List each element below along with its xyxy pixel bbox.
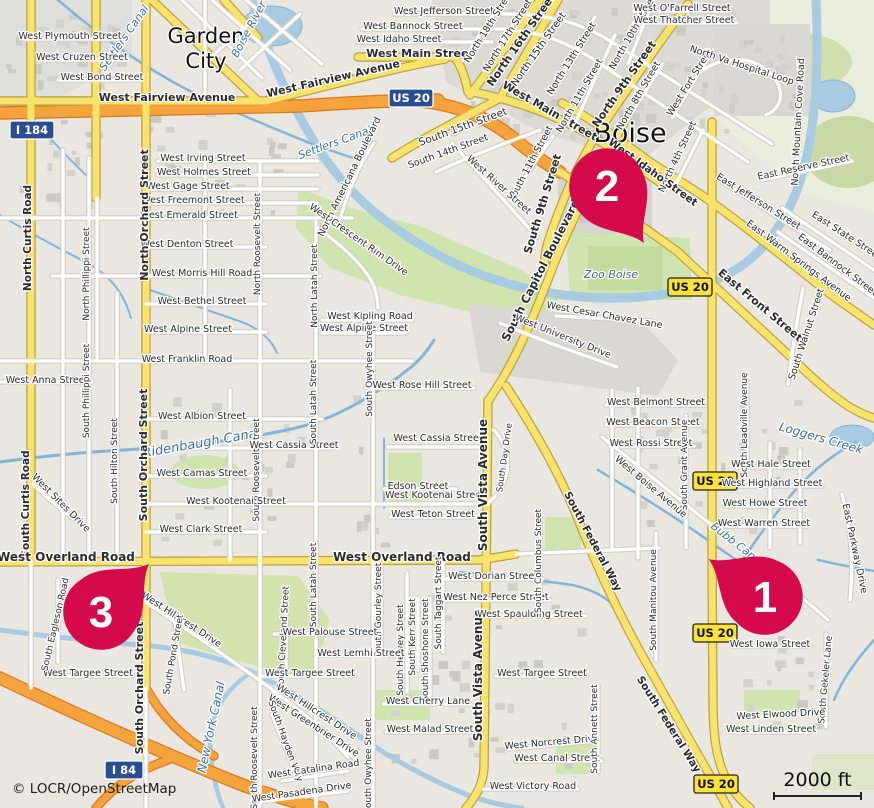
building: [161, 430, 168, 439]
building: [777, 665, 781, 671]
shield-text: I 184: [16, 123, 48, 137]
building: [572, 72, 583, 81]
street-label: West Main Street: [366, 47, 473, 60]
building: [181, 454, 187, 462]
building: [459, 708, 465, 713]
building: [198, 140, 207, 150]
building: [703, 82, 709, 88]
building: [288, 454, 296, 463]
street-label: West Targee Street: [265, 668, 355, 679]
street-label: West Kootenai Street: [385, 490, 485, 501]
building: [161, 536, 169, 541]
marker-number: 3: [89, 588, 113, 637]
street-label: West Franklin Road: [142, 354, 233, 365]
building: [612, 8, 618, 15]
street-label: West Denton Street: [140, 239, 233, 250]
building: [265, 467, 273, 474]
street-label: South Latah Street: [309, 359, 319, 444]
street-label: South Taggart Street: [434, 556, 444, 649]
street-label: West Bannock Street: [363, 21, 462, 32]
street-label: West Fairview Avenue: [99, 91, 236, 104]
street-label: South Hilton Street: [110, 418, 120, 504]
shield-text: US 20: [671, 280, 709, 294]
street-label: West Jefferson Street: [394, 6, 494, 17]
building: [700, 119, 706, 128]
marker-number: 2: [595, 162, 619, 211]
street-label: West Albion Street: [158, 411, 246, 422]
building: [267, 516, 276, 521]
city-label: City: [185, 49, 226, 73]
building: [359, 447, 363, 455]
building: [53, 151, 60, 158]
shield-text: US 20: [696, 626, 734, 640]
map-svg: I 184I 84US 20US 20US 20US 20US 20Garden…: [0, 0, 874, 808]
street-label: South Vista Avenue: [471, 609, 485, 741]
street-label: South Owyhee Street: [364, 718, 374, 808]
building: [721, 463, 725, 472]
building: [56, 20, 64, 28]
building: [780, 35, 784, 44]
building: [8, 69, 16, 74]
building: [719, 86, 724, 94]
street-label: West Anna Street: [6, 375, 89, 386]
street-label: West Alpine Street: [144, 324, 232, 335]
street-label: West Highland Street: [722, 478, 823, 489]
street-label: West Idaho Street: [357, 34, 442, 45]
street-label: West Targee Street: [43, 668, 133, 679]
scale-box: 2000 ft: [773, 769, 862, 800]
street-label: West O'Farrell Street: [633, 3, 731, 14]
building: [578, 628, 587, 636]
building: [767, 680, 771, 685]
route-shield: US 20: [389, 89, 433, 107]
building: [429, 749, 438, 759]
building: [762, 429, 767, 434]
street-label: West Rose Hill Street: [372, 380, 471, 391]
street-label: West Kipling Road: [327, 311, 412, 322]
street-label: South Vista Avenue: [476, 419, 490, 551]
street-label: South Columbus Street: [534, 508, 544, 613]
street-label: South Kerr Street: [408, 598, 418, 676]
street-label: West Morris Hill Road: [152, 268, 253, 279]
street-label: West Bethel Street: [158, 296, 247, 307]
scale-bar: [773, 792, 862, 800]
street-label: South Latah Street: [309, 542, 319, 627]
building: [744, 40, 754, 45]
building: [364, 515, 371, 522]
building: [778, 54, 785, 60]
street-label: West Warren Street: [718, 518, 810, 529]
building: [695, 501, 703, 507]
map-canvas[interactable]: I 184I 84US 20US 20US 20US 20US 20Garden…: [0, 0, 874, 808]
street-label: South Curtis Road: [20, 450, 32, 557]
street-label: South Owyhee Street: [365, 321, 375, 417]
building: [439, 661, 448, 669]
map-attribution: © LOCR/OpenStreetMap: [12, 781, 176, 797]
building: [766, 61, 773, 67]
building: [731, 94, 737, 100]
street-label: South Annett Street: [590, 684, 600, 774]
building: [462, 661, 471, 670]
building: [779, 447, 789, 455]
street-label: West Lemhi Street: [317, 648, 404, 659]
building: [490, 737, 498, 741]
building: [151, 115, 161, 123]
street-label: North Phillippi Street: [82, 227, 92, 321]
building: [508, 704, 514, 713]
building: [157, 145, 165, 151]
street-label: West Spaulding Street: [477, 609, 583, 620]
building: [676, 26, 686, 36]
scale-label: 2000 ft: [773, 769, 862, 791]
building: [725, 129, 730, 134]
building: [594, 94, 599, 98]
building: [729, 105, 734, 114]
building: [507, 583, 517, 591]
street-label: West Cruzen Street: [36, 52, 128, 63]
building: [649, 464, 658, 469]
road-line: [452, 143, 537, 237]
building: [173, 397, 181, 407]
street-label: West Cherry Lane: [386, 696, 470, 707]
street-label: West Linden Street: [726, 724, 816, 735]
building: [35, 64, 42, 74]
street-label: West Hale Street: [731, 459, 811, 470]
building: [754, 48, 762, 53]
building: [175, 513, 184, 519]
building: [391, 711, 400, 716]
building: [701, 89, 706, 97]
building: [6, 64, 11, 69]
building: [411, 759, 416, 764]
building: [743, 679, 753, 687]
street-label: West Bond Street: [61, 72, 144, 83]
street-label: West Holmes Street: [157, 167, 251, 178]
street-label: West Gage Street: [146, 181, 230, 192]
building: [432, 675, 439, 685]
street-label: West Overland Road: [333, 550, 471, 564]
street-label: South Federal Way: [634, 674, 703, 775]
building: [534, 660, 543, 668]
street-label: South Orchard Street: [133, 622, 146, 755]
building: [66, 170, 74, 176]
building: [674, 63, 681, 67]
street-label: West Clark Street: [160, 524, 243, 535]
street-label: West Boise Avenue: [612, 454, 688, 521]
street-label: West Palouse Street: [283, 627, 378, 638]
street-label: South Grant Avenue: [680, 419, 690, 510]
building: [117, 62, 127, 66]
building: [640, 501, 647, 509]
route-shield: US 20: [694, 775, 738, 793]
building: [571, 11, 580, 15]
street-label: South Shoshone Street: [421, 598, 431, 702]
building: [278, 143, 287, 149]
building: [269, 146, 275, 155]
street-label: North Roosevelt Street: [253, 192, 263, 295]
shield-text: US 20: [697, 777, 735, 791]
building: [61, 120, 68, 124]
building: [72, 151, 77, 155]
street-label: West Malad Street: [387, 724, 474, 735]
street-label: North Curtis Road: [22, 185, 34, 291]
building: [496, 625, 502, 629]
building: [647, 520, 655, 527]
street-label: South Gourley Street: [374, 562, 384, 657]
route-shield: I 184: [10, 121, 54, 139]
marker-number: 1: [753, 573, 777, 622]
water-label: Zoo Boise: [583, 268, 639, 281]
building: [794, 400, 802, 406]
street-label: West Victory Road: [490, 781, 576, 792]
building: [46, 194, 56, 202]
street-label: West Camas Street: [157, 468, 248, 479]
building: [357, 522, 361, 532]
route-shield: US 20: [668, 278, 712, 296]
street-label: West Howe Street: [723, 498, 808, 509]
street-label: South Orchard Street: [137, 389, 150, 522]
street-label: West Emerald Street: [140, 210, 238, 221]
street-label: West Thatcher Street: [634, 15, 735, 26]
loggers-creek-2: [818, 560, 874, 571]
street-label: West Cassia Street: [249, 440, 338, 451]
creek: [834, 640, 874, 700]
street-label: North Orchard Street: [138, 149, 151, 281]
water-label: New York Canal: [195, 680, 228, 775]
street-label: South Phillippi Street: [82, 343, 92, 438]
building: [452, 675, 461, 682]
building: [562, 723, 567, 730]
street-label: South Manitou Avenue: [649, 549, 659, 651]
street-label: West Targee Street: [497, 668, 587, 679]
building: [37, 80, 42, 89]
street-label: West Canal Street: [514, 753, 599, 764]
building: [809, 685, 814, 691]
building: [213, 540, 222, 546]
shield-text: US 20: [392, 91, 430, 105]
building: [570, 133, 576, 140]
street-label: West Iowa Street: [730, 639, 811, 650]
street-label: East Parkway Drive: [840, 503, 870, 595]
street-label: West Cassia Street: [393, 433, 482, 444]
street-label: West Belmont Street: [607, 397, 705, 408]
building: [808, 671, 814, 677]
street-label: West Dorian Street: [448, 571, 538, 582]
building: [166, 127, 175, 133]
route-shield: I 84: [105, 761, 143, 779]
street-label: West Freemont Street: [141, 195, 245, 206]
building: [381, 543, 390, 548]
street-label: West Teton Street: [391, 509, 475, 520]
street-label: North Latah Street: [310, 244, 320, 328]
street-label: West Kootenai Street: [186, 496, 286, 507]
street-label: West Overland Road: [0, 550, 135, 564]
building: [495, 703, 505, 710]
street-label: West Irving Street: [160, 153, 246, 164]
building: [796, 658, 804, 665]
building: [460, 683, 470, 692]
building: [48, 163, 53, 171]
shield-text: I 84: [112, 763, 136, 777]
street-label: West Plymouth Street: [18, 31, 121, 42]
